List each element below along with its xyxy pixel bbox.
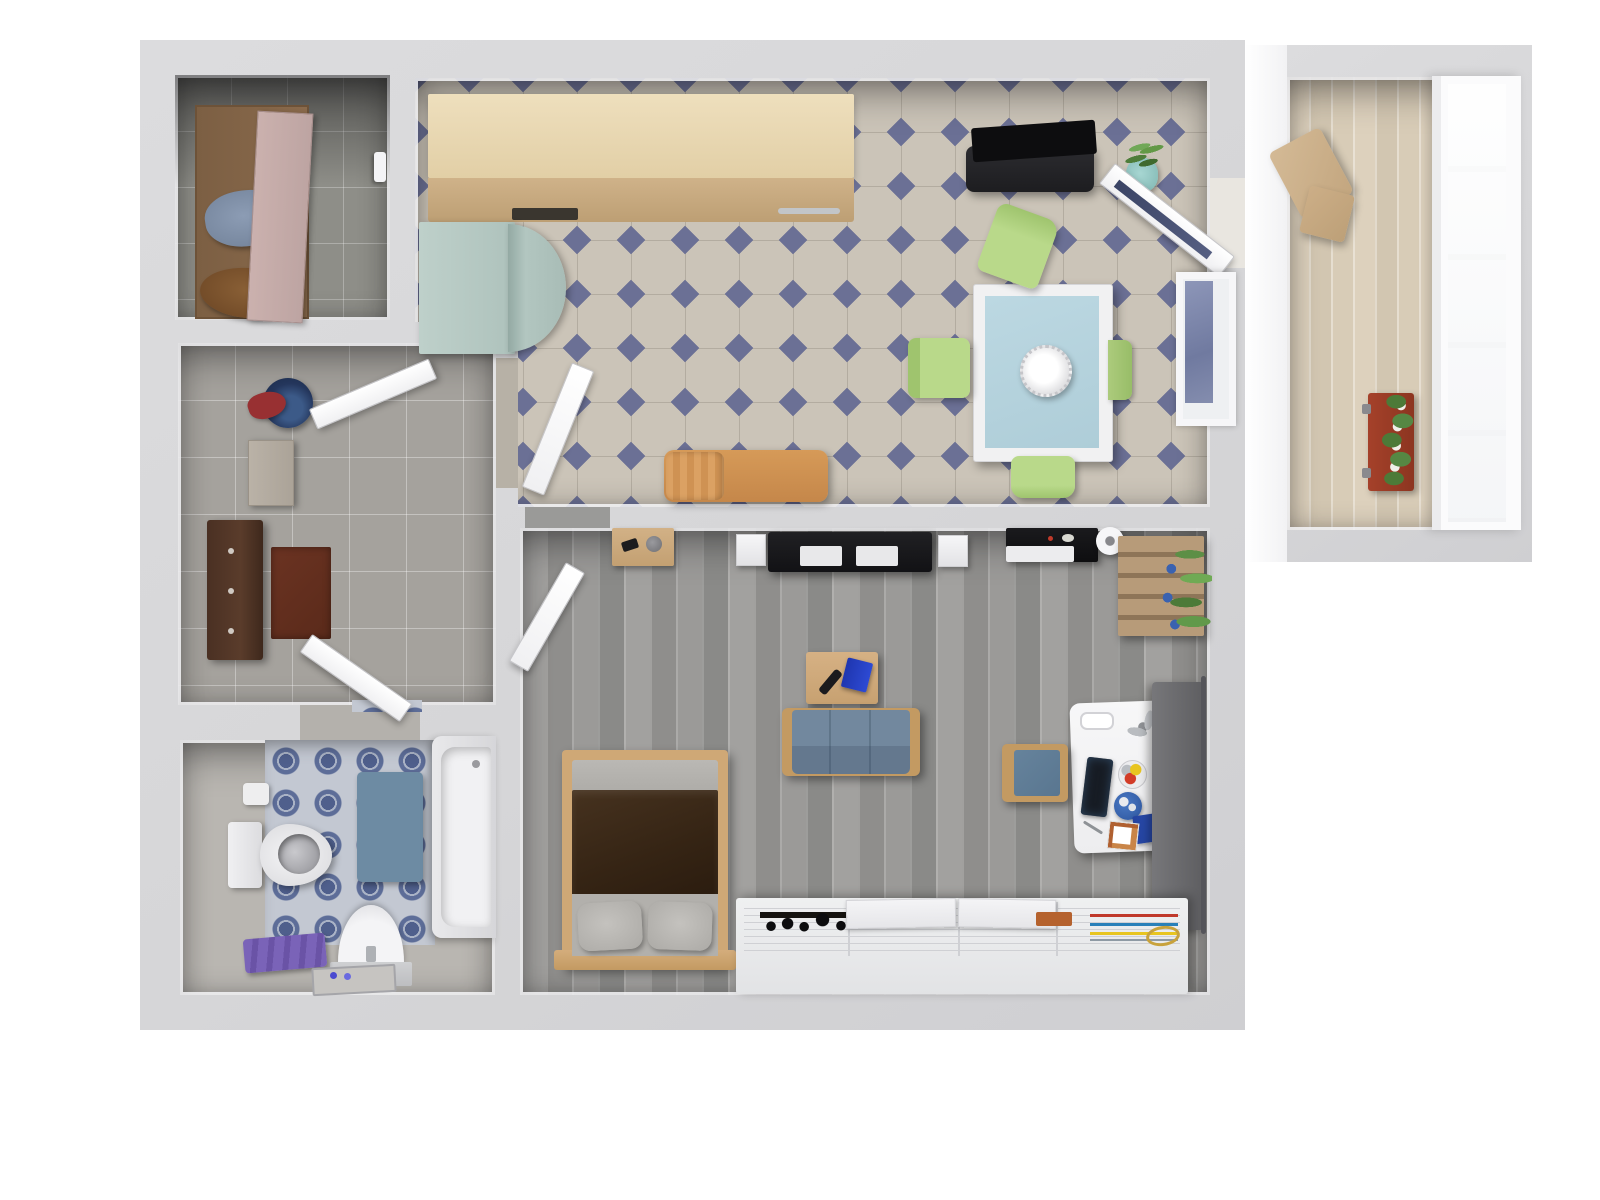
shower-handle xyxy=(374,152,386,182)
tray-bottle-2 xyxy=(344,973,351,980)
tv-bracket-left xyxy=(800,546,842,566)
color-wheel xyxy=(1118,760,1147,789)
doorway-kitchen-living xyxy=(525,507,610,528)
shelf-plant xyxy=(1138,540,1212,636)
desk-tray xyxy=(1080,712,1114,730)
orange-box xyxy=(1036,912,1072,926)
door-mat xyxy=(271,547,331,639)
curtain-rod xyxy=(1201,676,1206,934)
bath-mat xyxy=(357,772,423,882)
toilet-tank xyxy=(228,822,262,888)
bathtub-drain xyxy=(472,760,480,768)
coat-hook-1 xyxy=(228,548,234,554)
wardrobe-door xyxy=(247,111,314,324)
centerpiece-bowl xyxy=(1020,345,1072,397)
sofa-seats xyxy=(792,710,910,746)
dining-chair-south xyxy=(1011,456,1075,498)
bench-stool xyxy=(666,452,724,500)
balcony-window-glass xyxy=(1448,84,1506,522)
toilet-paper-holder xyxy=(243,783,269,805)
audio-knob-white xyxy=(1062,534,1074,542)
bed-blanket xyxy=(572,790,718,896)
organizer-lid-left xyxy=(846,898,956,929)
counter-front xyxy=(428,178,854,222)
bed-mattress-head xyxy=(572,760,718,792)
tv-bracket-right xyxy=(856,546,898,566)
speaker-left xyxy=(736,534,766,566)
flower-box-bracket-top xyxy=(1362,404,1371,414)
bathtub-basin xyxy=(441,747,491,927)
coat-rack xyxy=(207,520,263,660)
tray-bottle-1 xyxy=(330,972,337,979)
refrigerator xyxy=(419,222,515,354)
sink-faucet xyxy=(366,946,376,962)
shoe-cabinet xyxy=(248,440,294,506)
coat-hook-2 xyxy=(228,588,234,594)
oven-recess xyxy=(512,208,578,220)
coat-hook-3 xyxy=(228,628,234,634)
floor-tray xyxy=(311,964,396,996)
curtain-rug xyxy=(1152,682,1204,930)
audio-knob-red xyxy=(1048,536,1053,541)
sofa-back xyxy=(792,746,910,774)
dining-chair-east xyxy=(1108,340,1132,400)
speaker-right xyxy=(938,535,968,567)
toilet-bowl-inner xyxy=(278,834,320,874)
doorway-hall-kitchen xyxy=(496,358,518,488)
kitchen-counter xyxy=(428,94,854,178)
floor-plan-canvas: { "title": "Top-down 3D apartment floor … xyxy=(0,0,1600,1200)
dining-chair-west xyxy=(908,338,970,398)
dining-window-glass xyxy=(1185,281,1213,403)
bed-pillow-left xyxy=(577,900,643,951)
flower-box-bracket-bottom xyxy=(1362,468,1371,478)
bed-pillow-right xyxy=(647,901,713,951)
white-flowers xyxy=(1372,394,1416,490)
desk-photos xyxy=(1107,821,1140,852)
counter-handle xyxy=(778,208,840,214)
desk-chair-seat xyxy=(1014,750,1060,796)
organizer-black-items xyxy=(760,908,852,934)
balcony-left-wall-lit xyxy=(1245,45,1287,562)
shelf-item-round xyxy=(646,536,662,552)
tv-unit xyxy=(768,532,932,572)
audio-shelf-board xyxy=(1006,546,1074,562)
